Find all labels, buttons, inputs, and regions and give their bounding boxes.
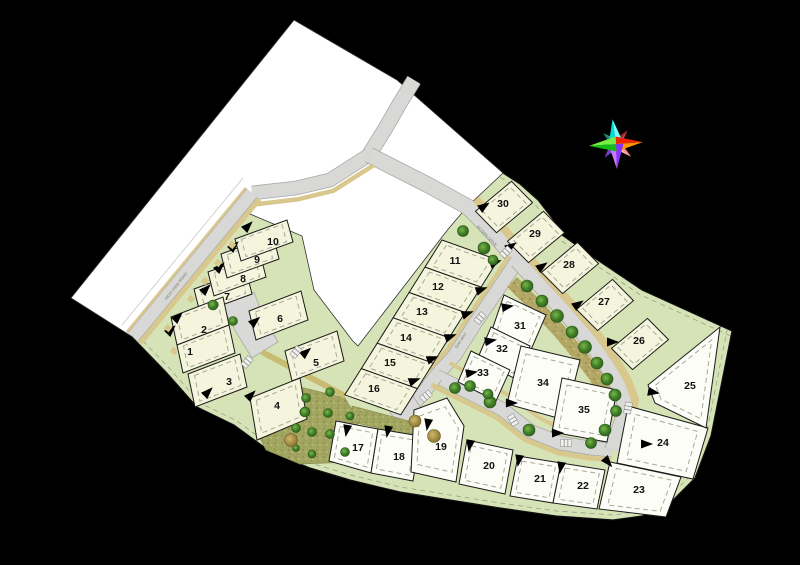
svg-text:10: 10 [267, 236, 279, 248]
svg-text:26: 26 [633, 335, 645, 347]
svg-text:34: 34 [537, 377, 549, 389]
svg-text:14: 14 [400, 332, 412, 344]
svg-text:25: 25 [684, 380, 696, 392]
svg-text:17: 17 [352, 442, 364, 454]
svg-text:1: 1 [187, 346, 193, 358]
svg-text:6: 6 [277, 313, 283, 325]
svg-text:19: 19 [435, 441, 447, 453]
svg-text:15: 15 [384, 357, 396, 369]
svg-text:11: 11 [449, 255, 460, 267]
svg-text:24: 24 [657, 437, 669, 449]
svg-text:33: 33 [477, 367, 489, 379]
svg-text:12: 12 [432, 281, 444, 293]
svg-text:21: 21 [534, 473, 546, 485]
svg-text:20: 20 [483, 460, 495, 472]
svg-text:16: 16 [368, 383, 380, 395]
svg-text:4: 4 [274, 400, 280, 412]
svg-text:3: 3 [226, 376, 232, 388]
svg-text:29: 29 [529, 228, 541, 240]
svg-text:31: 31 [514, 320, 526, 332]
svg-text:22: 22 [577, 480, 589, 492]
svg-text:8: 8 [240, 273, 246, 285]
svg-text:35: 35 [578, 404, 590, 416]
svg-text:18: 18 [393, 451, 405, 463]
svg-text:28: 28 [563, 259, 575, 271]
svg-text:7: 7 [224, 291, 230, 303]
svg-text:5: 5 [313, 357, 319, 369]
svg-text:13: 13 [416, 306, 428, 318]
svg-text:23: 23 [633, 484, 645, 496]
svg-text:27: 27 [598, 296, 610, 308]
svg-text:32: 32 [496, 343, 508, 355]
svg-text:30: 30 [497, 198, 509, 210]
